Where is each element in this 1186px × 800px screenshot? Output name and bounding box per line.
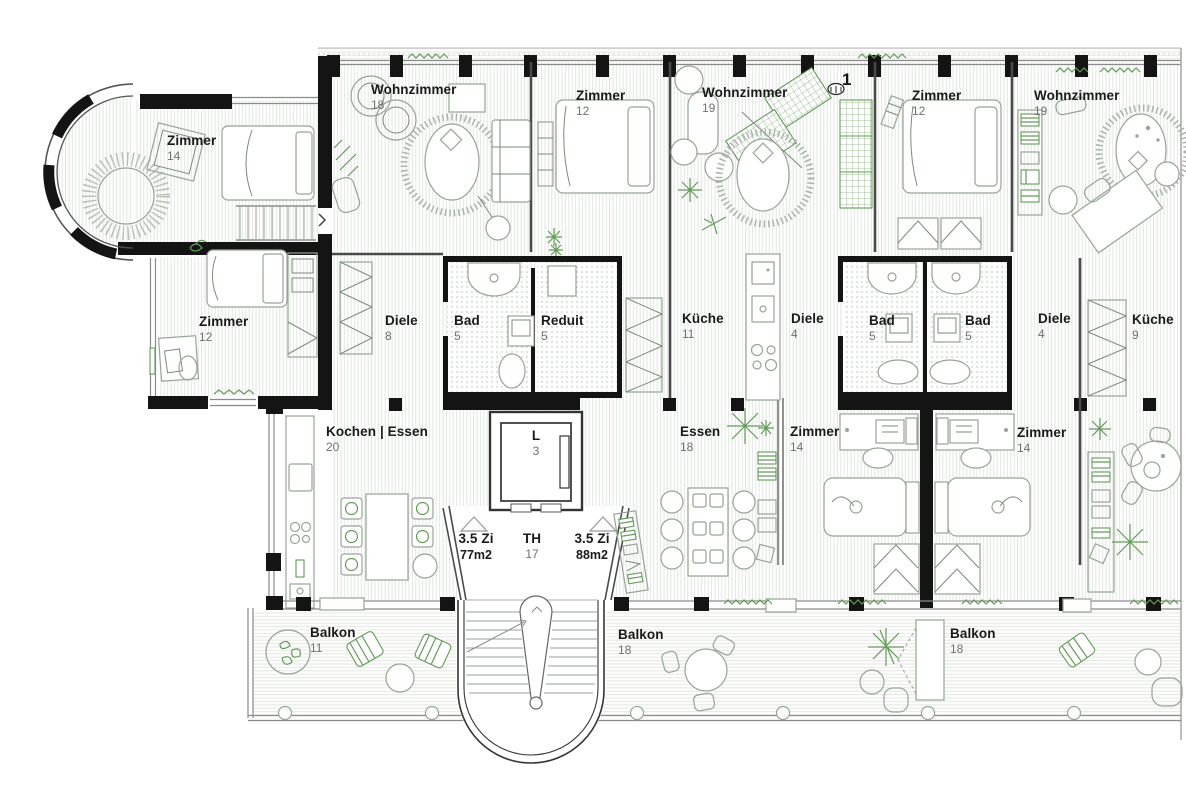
room-label-balkon-c: Balkon18 <box>950 626 996 656</box>
bed <box>948 478 1030 536</box>
toilet <box>878 360 918 384</box>
desk <box>150 336 198 381</box>
kitchen-counter <box>746 254 780 400</box>
balcony-table <box>386 664 414 692</box>
bed <box>222 126 314 200</box>
desk-chair <box>961 448 991 468</box>
room-label-kueche-b: Küche9 <box>1132 312 1174 342</box>
toilet <box>930 360 970 384</box>
room-label-zimmer-mid-a: Zimmer14 <box>790 424 839 454</box>
room-label-zimmer-tower: Zimmer 14 <box>167 133 216 163</box>
floor-lamp <box>486 216 510 240</box>
room-label-balkon-a: Balkon11 <box>310 625 356 655</box>
room-label-essen: Essen18 <box>680 424 720 454</box>
stairs <box>456 596 606 763</box>
room-label-zimmer-top-b: Zimmer12 <box>912 88 961 118</box>
room-label-diele-b: Diele4 <box>791 311 824 341</box>
room-label-bad-b: Bad5 <box>869 313 895 343</box>
unit-marker-1: 1 <box>842 70 851 90</box>
grid-sofa-tall <box>840 100 872 208</box>
dining-table <box>341 494 437 580</box>
floor-plan: Zimmer 14 Wohnzimmer18 Zimmer12 Wohnzimm… <box>0 0 1186 800</box>
toilet <box>499 354 525 388</box>
direction-arrow <box>319 214 325 226</box>
stairwell-label: TH17 <box>512 531 552 561</box>
lift <box>490 412 582 512</box>
room-label-wohnzimmer-b: Wohnzimmer19 <box>702 85 788 115</box>
room-label-wohnzimmer-a: Wohnzimmer18 <box>371 82 457 112</box>
room-label-bad-c: Bad5 <box>965 313 991 343</box>
room-label-kochen-essen: Kochen | Essen20 <box>326 424 428 454</box>
desk-chair <box>863 448 893 468</box>
room-label-balkon-b: Balkon18 <box>618 627 664 657</box>
room-label-kueche-a: Küche11 <box>682 311 724 341</box>
unit-label-right: 3.5 Zi88m2 <box>566 531 618 562</box>
room-label-bad-a: Bad5 <box>454 313 480 343</box>
room-label-diele-a: Diele8 <box>385 313 418 343</box>
room-label-zimmer-top-a: Zimmer12 <box>576 88 625 118</box>
storage-box <box>916 620 944 700</box>
plant-large <box>727 408 763 444</box>
bed <box>824 478 906 536</box>
plant <box>546 228 562 246</box>
balcony-table <box>685 649 727 691</box>
plant-fan <box>1112 524 1148 560</box>
room-label-zimmer-mid-b: Zimmer14 <box>1017 425 1066 455</box>
cabinet <box>548 266 576 296</box>
lift-label: L3 <box>508 428 564 458</box>
room-label-diele-c: Diele4 <box>1038 311 1071 341</box>
unit-label-left: 3.5 Zi77m2 <box>450 531 502 562</box>
kitchen-counter <box>286 416 314 608</box>
room-label-zimmer-left: Zimmer12 <box>199 314 248 344</box>
room-label-wohnzimmer-c: Wohnzimmer19 <box>1034 88 1120 118</box>
room-label-reduit: Reduit5 <box>541 313 584 343</box>
sofa <box>492 120 530 202</box>
floor-plan-drawing <box>0 0 1186 800</box>
